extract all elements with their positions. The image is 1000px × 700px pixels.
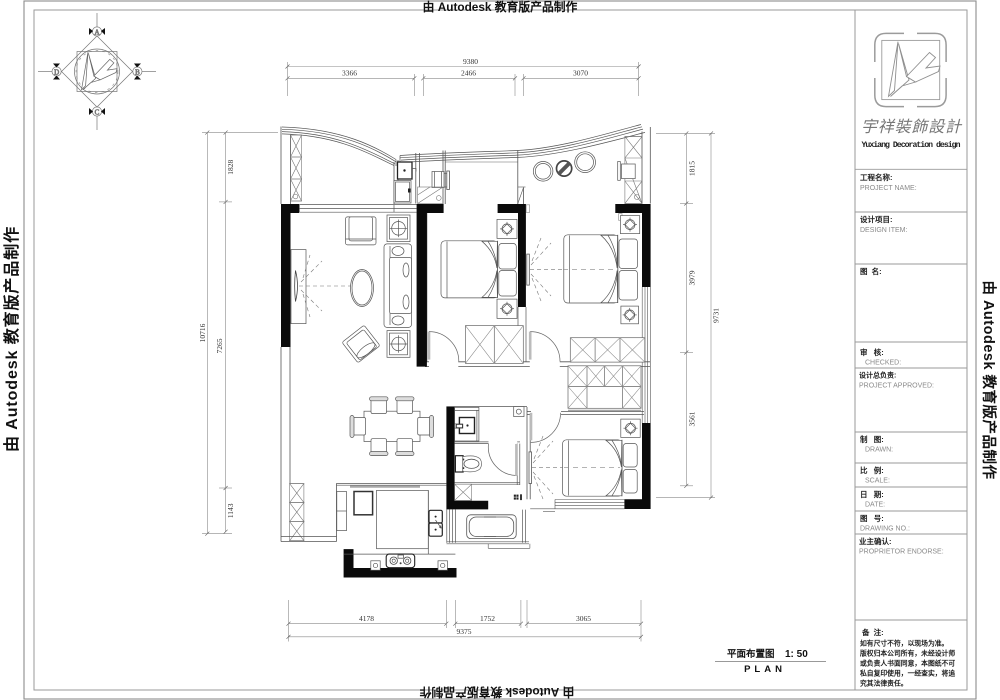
svg-text:设计总负责:: 设计总负责: bbox=[859, 371, 896, 380]
svg-text:10716: 10716 bbox=[198, 323, 207, 342]
svg-text:备 注:: 备 注: bbox=[861, 627, 884, 637]
svg-text:PROPRIETOR ENDORSE:: PROPRIETOR ENDORSE: bbox=[859, 549, 944, 556]
svg-text:1: 50: 1: 50 bbox=[785, 649, 808, 660]
svg-text:或负责人书面同意，本图纸不可: 或负责人书面同意，本图纸不可 bbox=[860, 659, 955, 668]
svg-text:图 号:: 图 号: bbox=[860, 514, 884, 523]
svg-text:图 名:: 图 名: bbox=[860, 266, 882, 276]
svg-text:私自复印使用，一经查实，将追: 私自复印使用，一经查实，将追 bbox=[860, 669, 955, 678]
svg-text:比 例:: 比 例: bbox=[860, 465, 884, 475]
svg-text:3070: 3070 bbox=[573, 69, 588, 78]
svg-text:由 Autodesk 教育版产品制作: 由 Autodesk 教育版产品制作 bbox=[419, 685, 574, 699]
svg-text:DATE:: DATE: bbox=[865, 502, 885, 509]
svg-text:3065: 3065 bbox=[576, 614, 591, 623]
svg-text:2466: 2466 bbox=[461, 69, 476, 78]
svg-text:宇祥裝飾設計: 宇祥裝飾設計 bbox=[861, 118, 963, 136]
svg-text:日 期:: 日 期: bbox=[860, 489, 884, 499]
svg-text:4178: 4178 bbox=[359, 614, 374, 623]
svg-text:SCALE:: SCALE: bbox=[865, 478, 890, 485]
svg-text:B: B bbox=[135, 69, 140, 77]
svg-text:3561: 3561 bbox=[687, 411, 696, 426]
svg-text:DRAWING NO.:: DRAWING NO.: bbox=[860, 526, 910, 533]
svg-text:制 图:: 制 图: bbox=[860, 434, 884, 444]
svg-text:版权归本公司所有，未经设计师: 版权归本公司所有，未经设计师 bbox=[859, 649, 955, 658]
svg-text:平面布置图: 平面布置图 bbox=[727, 648, 775, 660]
svg-text:PROJECT APPROVED:: PROJECT APPROVED: bbox=[859, 383, 934, 390]
svg-text:如有尺寸不符，以现场为准。: 如有尺寸不符，以现场为准。 bbox=[860, 639, 948, 648]
svg-text:3979: 3979 bbox=[687, 270, 696, 285]
svg-text:Yuxiang Decoration design: Yuxiang Decoration design bbox=[862, 140, 961, 150]
svg-text:9380: 9380 bbox=[463, 57, 478, 66]
svg-text:7265: 7265 bbox=[215, 338, 224, 353]
svg-text:1815: 1815 bbox=[687, 161, 696, 176]
svg-text:工程名称:: 工程名称: bbox=[860, 172, 893, 182]
svg-text:PLAN: PLAN bbox=[744, 664, 786, 675]
svg-text:1143: 1143 bbox=[226, 503, 235, 518]
svg-text:审 核:: 审 核: bbox=[860, 347, 884, 357]
svg-text:业主确认:: 业主确认: bbox=[859, 536, 892, 546]
svg-text:由 Autodesk 教育版产品制作: 由 Autodesk 教育版产品制作 bbox=[423, 0, 578, 14]
svg-text:DESIGN ITEM:: DESIGN ITEM: bbox=[860, 227, 908, 234]
svg-text:D: D bbox=[54, 69, 59, 77]
svg-text:9375: 9375 bbox=[457, 627, 472, 636]
svg-text:A: A bbox=[94, 29, 99, 37]
svg-text:1752: 1752 bbox=[480, 614, 495, 623]
svg-text:PROJECT NAME:: PROJECT NAME: bbox=[860, 185, 917, 192]
svg-text:C: C bbox=[95, 109, 100, 117]
svg-text:1828: 1828 bbox=[226, 159, 235, 174]
svg-text:9731: 9731 bbox=[712, 308, 721, 323]
svg-text:由 Autodesk 教育版产品制作: 由 Autodesk 教育版产品制作 bbox=[2, 226, 21, 452]
svg-text:CHECKED:: CHECKED: bbox=[865, 360, 901, 367]
svg-text:3366: 3366 bbox=[342, 69, 357, 78]
svg-text:由 Autodesk 教育版产品制作: 由 Autodesk 教育版产品制作 bbox=[980, 280, 998, 479]
svg-text:究其法律责任。: 究其法律责任。 bbox=[860, 679, 908, 688]
svg-text:DRAWN:: DRAWN: bbox=[865, 447, 893, 454]
svg-text:设计项目:: 设计项目: bbox=[860, 214, 893, 224]
